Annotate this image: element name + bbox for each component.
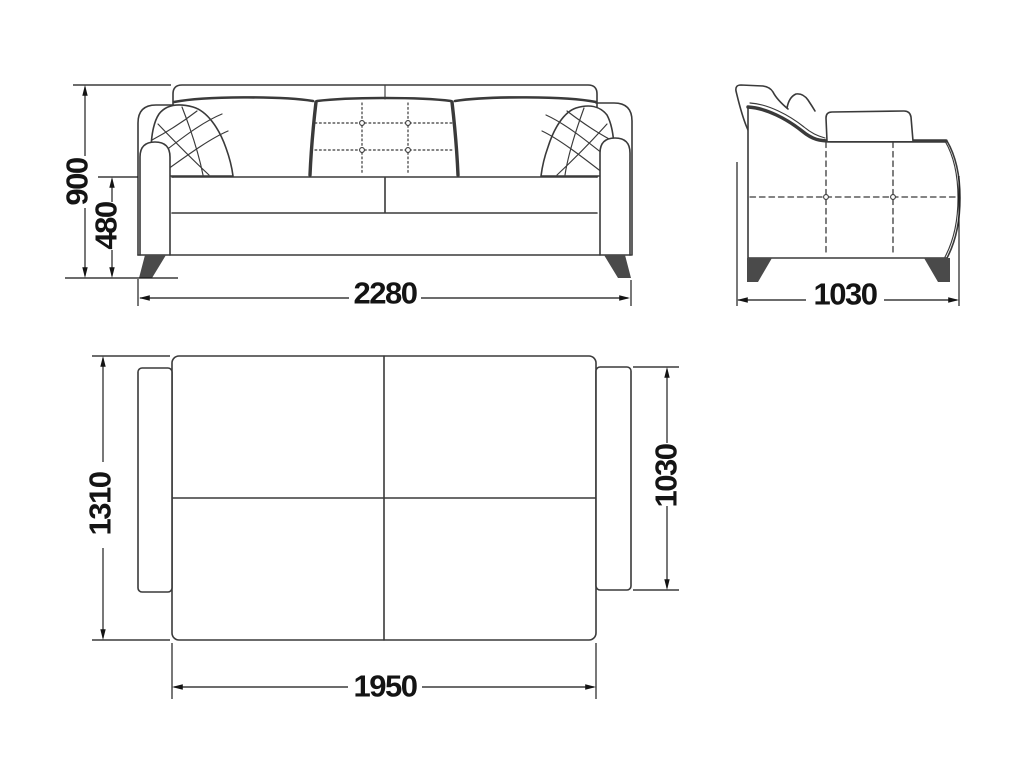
dim-label-unfolded-depth: 1310 xyxy=(83,472,118,535)
dim-label-overall-width: 2280 xyxy=(354,276,417,311)
tuft-button xyxy=(891,195,896,200)
front-view: 900 480 2280 xyxy=(60,85,633,311)
tuft-button xyxy=(360,148,365,153)
side-small-pillow xyxy=(787,94,815,111)
front-seat-base-lines xyxy=(138,177,631,255)
front-tufting-stitch-lines xyxy=(315,103,453,175)
front-left-arm-roll xyxy=(140,142,170,255)
tuft-button xyxy=(824,195,829,200)
tuft-button xyxy=(360,121,365,126)
tuft-button xyxy=(406,148,411,153)
front-right-arm-roll xyxy=(600,138,630,255)
top-view: 1310 1030 1950 xyxy=(83,356,684,704)
dim-label-overall-depth: 1030 xyxy=(814,277,877,312)
side-view: 1030 xyxy=(736,85,960,312)
sofa-dimension-drawing: 900 480 2280 1030 xyxy=(0,0,1024,768)
drawing-canvas: 900 480 2280 1030 xyxy=(0,0,1024,768)
front-cushion-separators xyxy=(310,102,458,175)
front-cushion-top-edges xyxy=(174,97,596,102)
plan-right-armrest xyxy=(596,367,631,590)
tuft-button xyxy=(406,121,411,126)
dim-label-seat-height: 480 xyxy=(89,202,124,249)
side-headrest-cushion xyxy=(826,111,913,141)
plan-left-armrest xyxy=(138,368,172,592)
dim-label-bed-width: 1950 xyxy=(354,669,417,704)
dim-label-overall-height: 900 xyxy=(60,158,95,205)
front-tufting-buttons xyxy=(360,121,411,153)
dim-label-side-depth: 1030 xyxy=(649,444,684,507)
